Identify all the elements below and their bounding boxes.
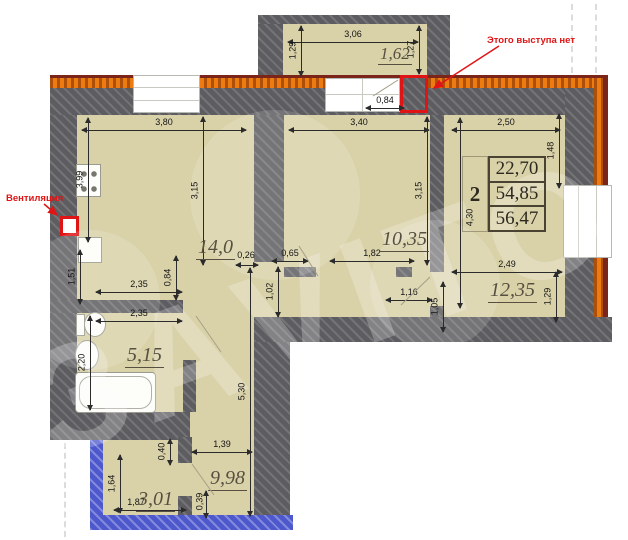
dimension-line [176,256,177,300]
dimension-line [90,316,91,410]
dimension-label: 3,06 [335,29,371,40]
dimension-line [288,42,418,43]
dimension-arrow [81,127,87,133]
total-area-value: 54,85 [488,181,546,208]
dimension-label: 3,99 [75,162,86,198]
dimension-label: 1,64 [107,466,118,502]
dimension-arrow [457,117,463,123]
dimension-label: 0,65 [272,248,308,259]
dimension-arrow [95,318,101,324]
wall-kitchen-living-divider [254,115,284,262]
room-area-label: 12,35 [488,279,537,303]
wall-balcony-top [258,15,450,24]
dimension-label: 1,16 [391,287,427,298]
dimension-line [556,272,557,322]
dimension-arrow [241,127,247,133]
dimension-line [559,114,560,188]
dimension-arrow [298,71,304,77]
dimension-arrow [457,303,463,309]
window-bedroom [563,185,612,258]
dimension-label: 2,35 [121,308,157,319]
no-protrusion-annotation: Этого выступа нет [487,35,575,46]
dimension-line [386,300,432,301]
dimension-label: 1,29 [288,33,299,69]
dimension-label: 2,20 [77,345,88,381]
dimension-arrow [253,262,259,268]
wall-top-exterior [50,88,565,115]
dimension-arrow [409,258,415,264]
wall-bathroom-right [183,360,196,412]
wall-bathroom-bottom [50,412,190,440]
dimension-arrow [247,449,253,455]
dimension-arrow [167,438,173,444]
dimension-label: 3,40 [341,117,377,128]
dimension-label: 4,30 [465,200,476,236]
dimension-arrow [424,260,430,266]
dimension-arrow [85,117,91,123]
dimension-arrow [77,249,83,255]
floor-plan: 2 22,70 54,85 56,47 ЗАVITO 3,061,291,270… [0,0,628,540]
dimension-label: 2,49 [489,259,525,270]
dimension-line [96,321,182,322]
dashed-guide-bottom-left [64,443,66,537]
dimension-label: 1,39 [204,439,240,450]
dimension-label: 2,50 [488,117,524,128]
dimension-arrow [95,289,101,295]
room-area-label: 10,35 [380,228,429,252]
dimension-arrow [451,127,457,133]
dimension-label: 1,05 [430,289,441,325]
dimension-line [278,267,279,317]
dimension-arrow [191,449,197,455]
dimension-line [301,26,302,76]
dimension-line [419,26,420,74]
wall-living-bottom-stub-a [284,267,316,277]
room-area-label: 14,0 [196,236,235,260]
room-area-label: 3,01 [136,488,175,512]
ventilation-annotation: Вентиляция [6,193,63,204]
dimension-label: 2,35 [121,279,157,290]
dimension-arrow [77,299,83,305]
dimension-label: 3,15 [190,173,201,209]
wall-living-bedroom-divider [430,115,444,272]
room-area-label: 1,62 [378,44,412,65]
dimension-arrow [247,511,253,517]
room-area-label: 9,98 [208,467,247,491]
dimension-line [452,130,560,131]
dimension-label: 1,02 [265,274,276,310]
dashed-guide-top-right-2 [595,4,597,73]
dimension-label: 3,80 [146,117,182,128]
dimension-line [330,261,414,262]
dimension-arrow [200,116,206,122]
dimension-arrow [87,315,93,321]
dimension-line [460,118,461,308]
dimension-line [80,250,81,304]
window-kitchen [133,75,200,113]
dimension-arrow [247,267,253,273]
dimension-arrow [416,25,422,31]
wall-stub-upper [178,437,192,463]
dimension-arrow [298,25,304,31]
dimension-label: 0,84 [163,260,174,296]
wall-living-bottom-stub-b [396,267,412,277]
dimension-label: 5,30 [237,374,248,410]
dimension-label: 1,29 [543,279,554,315]
room-area-label: 5,15 [125,344,164,368]
dimension-arrow [553,317,559,323]
dimension-arrow [556,113,562,119]
dimension-arrow [440,327,446,333]
dimension-line [443,282,444,332]
dimension-arrow [275,312,281,318]
dimension-label: 1,48 [546,133,557,169]
dimension-arrow [200,260,206,266]
dimension-arrow [85,237,91,243]
dimension-arrow [553,271,559,277]
dimension-arrow [117,454,123,460]
dimension-line [452,272,562,273]
dimension-arrow [177,318,183,324]
dimension-line [289,130,429,131]
living-area-value: 22,70 [488,156,546,183]
ventilation-highlight-box [60,216,79,236]
dimension-line [192,452,252,453]
dimension-arrow [329,258,335,264]
dimension-arrow [181,507,187,513]
dimension-label: 3,15 [414,173,425,209]
dimension-arrow [556,183,562,189]
dimension-arrow [416,69,422,75]
dimension-arrow [173,255,179,261]
dimension-line [88,118,89,242]
wall-kitchen-bathroom-divider [50,300,183,313]
dimension-label: 0,39 [195,484,206,520]
dimension-arrow [235,262,241,268]
wall-corridor-right [254,342,290,518]
dimension-arrow [167,460,173,466]
dimension-label: 0,84 [367,95,403,106]
dimension-line [250,268,251,516]
dimension-arrow [451,269,457,275]
total-area-with-balcony-value: 56,47 [488,205,546,232]
dimension-arrow [288,127,294,133]
dimension-arrow [424,116,430,122]
dimension-line [82,130,246,131]
dimension-arrow [173,295,179,301]
dimension-label: 0,40 [157,434,168,470]
wall-balcony-blue-bottom [90,515,293,530]
dimension-arrow [87,405,93,411]
dimension-arrow [440,281,446,287]
dimension-label: 1,51 [67,259,78,295]
dimension-arrow [275,266,281,272]
